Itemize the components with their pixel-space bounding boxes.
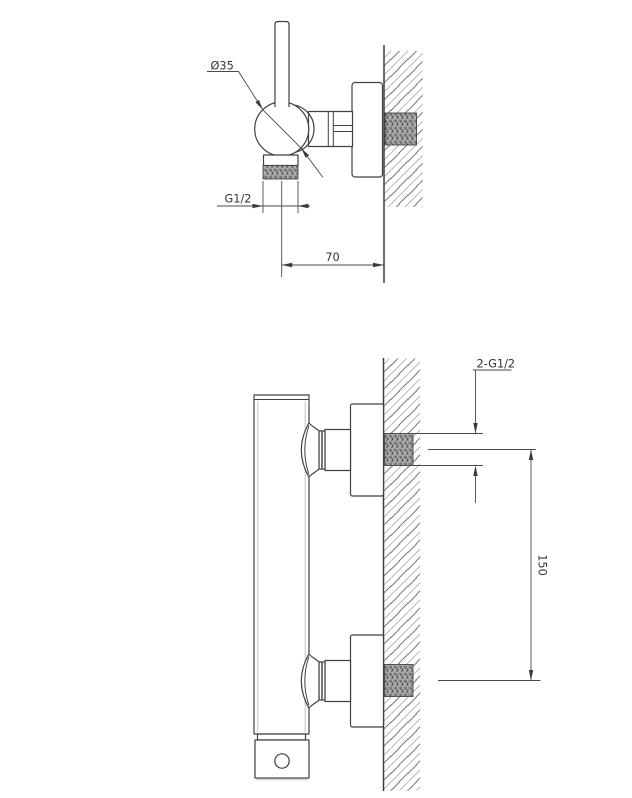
arrowhead [255, 100, 263, 110]
outlet-neck [264, 155, 299, 166]
wall-offset-label: 70 [325, 251, 339, 264]
valve-to-wall-pipe [309, 112, 353, 147]
side-view: Ø35 G1/2 70 [207, 22, 423, 284]
arrowhead [301, 148, 309, 158]
diameter-leader-line [207, 72, 263, 110]
outlet-thread-label: G1/2 [225, 193, 252, 206]
inlet-spacing-label: 150 [536, 554, 549, 576]
outlet-thread-knurl [263, 166, 298, 180]
arrowhead [473, 423, 477, 434]
bottom-union-cylinder [325, 661, 351, 702]
arrowhead [373, 263, 384, 267]
wall-escutcheon-side [352, 83, 383, 178]
technical-drawing-canvas: Ø35 G1/2 70 [0, 0, 632, 798]
wall-offset-dimension: 70 [282, 181, 384, 277]
body-bottom-lip [258, 734, 306, 740]
outlet-thread-dimension: G1/2 [217, 181, 310, 213]
arrowhead [529, 670, 533, 681]
top-union-cylinder [325, 430, 351, 471]
arrowhead [253, 204, 264, 208]
technical-drawing-page: Ø35 G1/2 70 [0, 0, 632, 798]
top-escutcheon [351, 404, 384, 496]
inlet-threads-label: 2-G1/2 [477, 358, 516, 371]
bottom-inlet-thread-knurl [385, 665, 414, 697]
arrowhead [282, 263, 293, 267]
handle-lever-rod [275, 22, 289, 108]
diameter-label: Ø35 [211, 60, 234, 73]
bottom-escutcheon [351, 635, 384, 727]
arrowhead [298, 204, 309, 208]
wall-hatch-front [384, 359, 420, 791]
arrowhead [473, 466, 477, 477]
inlet-spacing-dimension: 150 [428, 450, 549, 681]
top-inlet-thread-knurl [385, 434, 414, 466]
inlet-thread-dimension: 2-G1/2 [413, 358, 515, 504]
hose-outlet-circle [275, 754, 289, 768]
arrowhead [529, 450, 533, 461]
front-view: 2-G1/2 150 [254, 358, 549, 792]
wall-thread-knurl-side [385, 113, 417, 145]
